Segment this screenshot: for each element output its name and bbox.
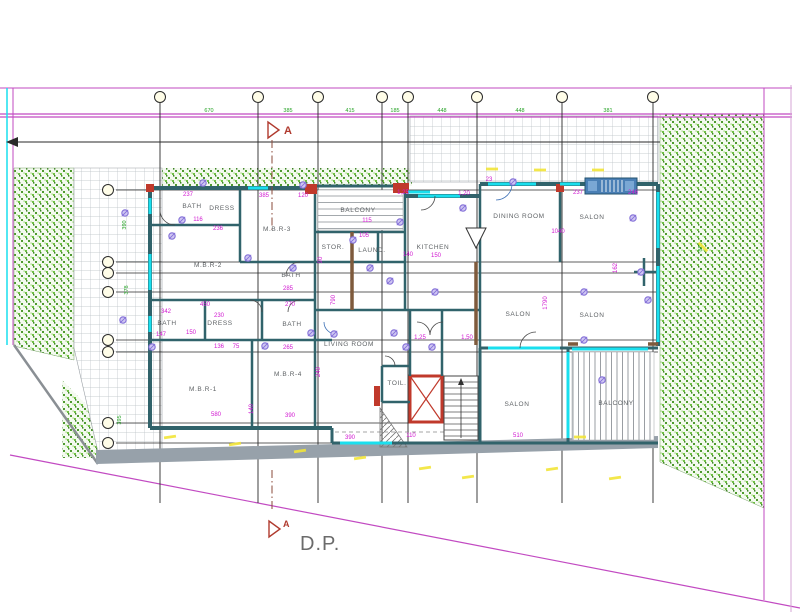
dimension-text: 580 <box>211 412 222 418</box>
dimension-text: 110 <box>406 433 416 439</box>
dimension-text: 120 <box>298 193 309 199</box>
room-label: M.B.R-1 <box>189 386 217 393</box>
dimension-text: 162 <box>613 262 619 273</box>
dimension-text: 510 <box>513 433 524 439</box>
road-marking-dash <box>534 169 546 172</box>
dimension-text: 105 <box>359 233 370 239</box>
room-label: BATH <box>157 320 176 327</box>
dimension-text: 390 <box>345 435 356 441</box>
wall-accents-brown <box>352 232 658 345</box>
room-label: SALON <box>579 312 604 319</box>
road-marking-dash <box>229 442 241 446</box>
room-label: BATH <box>282 321 301 328</box>
room-label: DRESS <box>207 320 232 327</box>
dimension-text: 285 <box>283 286 294 292</box>
dimension-text: 385 <box>259 193 270 199</box>
dimension-text-green: 381 <box>603 108 612 114</box>
dp-label: D.P. <box>300 533 340 555</box>
dimension-text: 265 <box>283 345 294 351</box>
dimension-text: 90 <box>318 256 324 263</box>
dimension-text: 116 <box>193 217 203 223</box>
room-label: BALCONY <box>598 400 633 407</box>
room-label: LIVING ROOM <box>324 341 374 348</box>
road-marking-dash <box>546 467 558 471</box>
section-marker-a-bottom: A <box>283 519 290 529</box>
dimension-text: 790 <box>331 294 337 305</box>
dimension-text: 390 <box>285 413 296 419</box>
dimension-text: 23 <box>486 177 493 183</box>
dimension-text: 1,25 <box>397 190 409 196</box>
road-marking-dash <box>419 466 431 470</box>
dimension-text-green: 670 <box>204 108 213 114</box>
dimension-text: 230 <box>214 313 225 319</box>
room-label: SALON <box>504 401 529 408</box>
dimension-text: 237 <box>183 192 194 198</box>
dimension-text-green: 395 <box>117 415 123 424</box>
dimension-text: 150 <box>186 330 197 336</box>
road-marking-dash <box>574 436 586 439</box>
dimension-text-green: 385 <box>283 108 292 114</box>
room-label: BATH <box>182 203 201 210</box>
dimension-text: 450 <box>200 302 211 308</box>
room-label: BATH <box>281 272 300 279</box>
room-label: SALON <box>579 214 604 221</box>
room-label: TOIL. <box>387 380 406 387</box>
room-label: KITCHEN <box>417 244 450 251</box>
dimension-text-green: 448 <box>437 108 446 114</box>
road-marking-dash <box>164 435 176 439</box>
dimension-text: 246 <box>628 190 639 196</box>
dimension-text: 140 <box>403 252 414 258</box>
dimension-text: 237 <box>573 190 584 196</box>
dimension-text: 136 <box>214 344 225 350</box>
room-label: STOR. <box>322 244 345 251</box>
room-label: BALCONY <box>340 207 375 214</box>
road-marking-dash <box>486 168 498 171</box>
dimension-text-green: 378 <box>124 285 130 294</box>
dimension-text: 342 <box>161 309 172 315</box>
dimension-text: 1,50 <box>461 335 473 341</box>
dimension-text: 75 <box>233 344 240 350</box>
room-label: SALON <box>505 311 530 318</box>
dimension-text: 115 <box>362 218 372 224</box>
dimension-text-green: 415 <box>345 108 354 114</box>
dimension-text: 147 <box>156 332 167 338</box>
dimension-text: 1,20 <box>458 191 470 197</box>
section-marker-a-top: A <box>284 125 292 137</box>
road-marking-dash <box>592 169 604 172</box>
room-label: LAUND. <box>358 247 385 254</box>
dimension-text-green: 390 <box>122 220 128 229</box>
road-marking-dash <box>462 475 474 479</box>
dimension-text: 270 <box>285 302 296 308</box>
stair-direction-arrow <box>466 228 486 248</box>
dimension-text-green: 448 <box>515 108 524 114</box>
road-marking-dash <box>609 476 621 480</box>
dimension-text: 236 <box>213 226 224 232</box>
room-label: DRESS <box>209 205 234 212</box>
dimension-text: 150 <box>431 253 442 259</box>
floor-plan-page: A A D.P. BATHDRESSM.B.R-3BALCONYSTOR.LAU… <box>0 0 800 612</box>
floor-plan-drawing: A A D.P. BATHDRESSM.B.R-3BALCONYSTOR.LAU… <box>0 0 800 612</box>
room-label: M.B.R-2 <box>194 262 222 269</box>
staircase <box>444 376 478 440</box>
room-label: M.B.R-3 <box>263 226 291 233</box>
elevator-shaft <box>410 376 442 422</box>
dimension-text: 240 <box>316 366 322 377</box>
dimension-text: 140 <box>249 403 255 414</box>
dimension-text: 1040 <box>551 229 565 235</box>
dimension-text: 1790 <box>543 296 549 310</box>
room-label: DINING ROOM <box>493 213 544 220</box>
dimension-text-green: 185 <box>390 108 399 114</box>
room-label: M.B.R-4 <box>274 371 302 378</box>
tiled-walkways <box>74 116 658 452</box>
dimension-text: 1,25 <box>414 335 426 341</box>
